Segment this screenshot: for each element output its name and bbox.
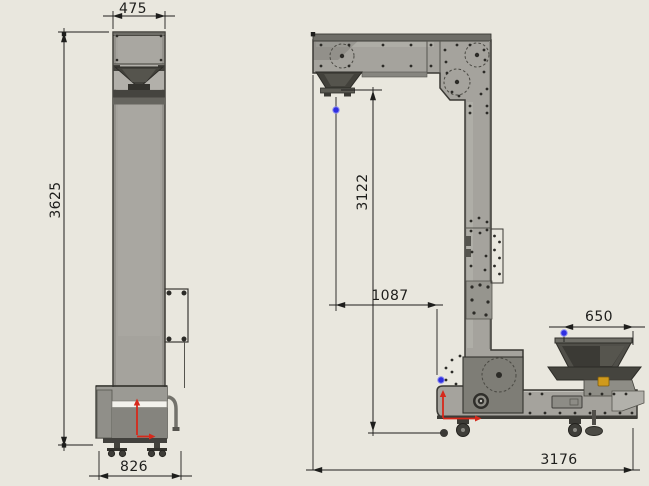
selection-points <box>333 107 567 383</box>
leveling-caster <box>107 443 127 457</box>
dim-side-discharge-height <box>341 87 441 436</box>
dim-label-front-overall-height: 3625 <box>48 176 64 224</box>
selection-point[interactable] <box>438 377 444 383</box>
outfeed-plate <box>612 391 644 411</box>
technical-drawing <box>0 0 649 486</box>
selection-point[interactable] <box>561 330 567 336</box>
front-feet <box>107 443 167 457</box>
front-side-box <box>165 289 188 388</box>
drain-pipe <box>168 397 176 427</box>
dim-label-side-discharge-reach: 1087 <box>368 288 412 304</box>
dim-label-side-overall-length: 3176 <box>534 452 584 468</box>
side-view <box>306 32 645 470</box>
front-view <box>58 11 192 480</box>
discharge-hopper <box>316 72 362 97</box>
dim-label-front-top-width: 475 <box>115 1 151 17</box>
leveling-caster <box>147 443 167 457</box>
drive-motor <box>473 393 489 409</box>
selection-point[interactable] <box>333 107 339 113</box>
deck-hatch <box>552 396 582 408</box>
dim-label-front-base-width: 826 <box>114 459 154 475</box>
dim-label-side-discharge-height: 3122 <box>355 168 371 216</box>
drive-housing <box>463 357 523 413</box>
caster-wheel <box>457 417 470 437</box>
clamp-detail <box>598 377 609 386</box>
caster-wheel <box>569 417 582 437</box>
dim-label-side-infeed-width: 650 <box>579 309 619 325</box>
caster-wheel <box>440 429 448 437</box>
column-side-rail <box>491 229 503 283</box>
drawing-canvas: 475 3625 826 3122 1087 650 3176 <box>0 0 649 486</box>
dim-side-discharge-reach <box>329 97 443 375</box>
